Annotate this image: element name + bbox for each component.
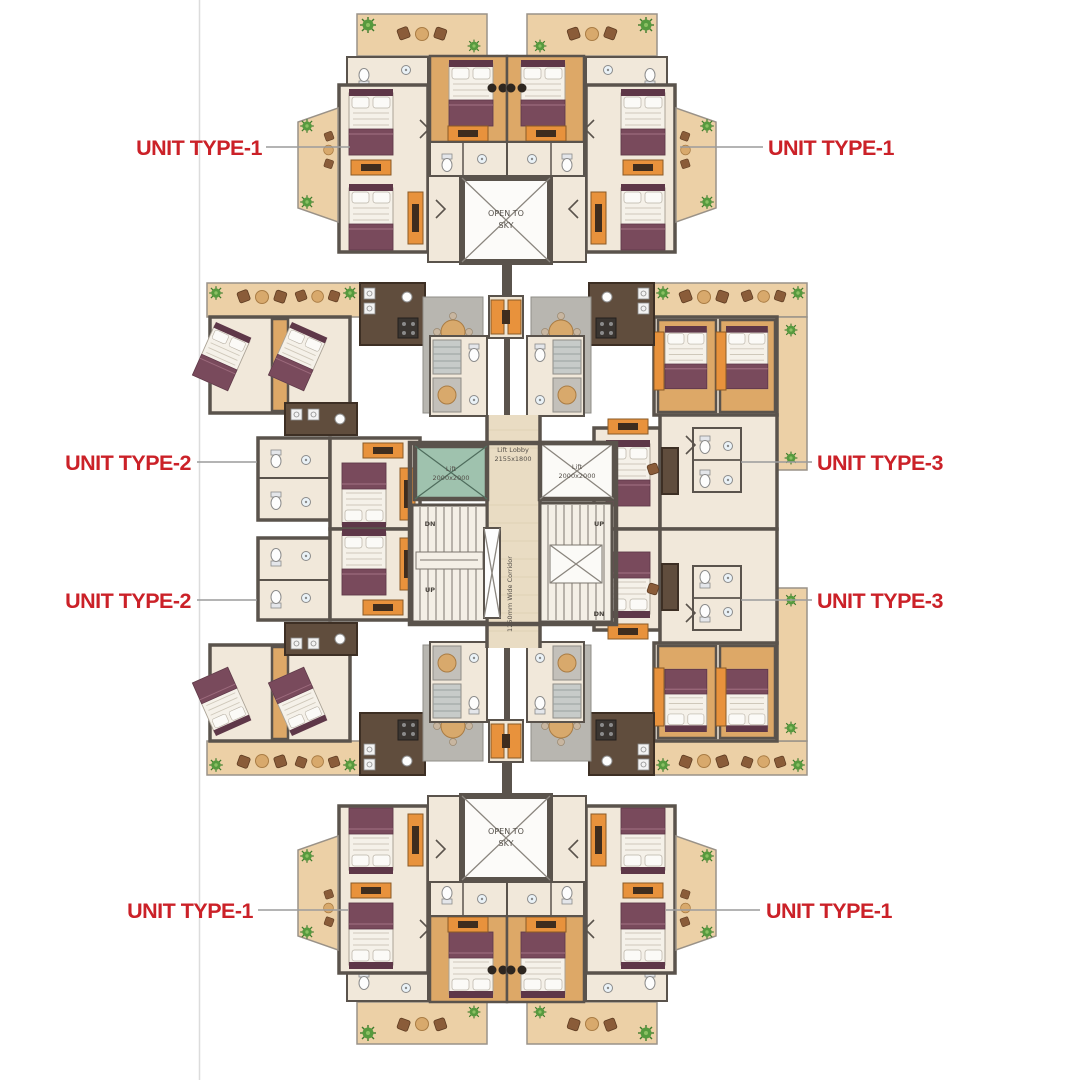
top-cluster-instance [298, 14, 716, 298]
open-to-sky-top: OPEN TO [488, 209, 524, 218]
svg-text:2155x1800: 2155x1800 [495, 455, 532, 463]
unit-label-mid-lower-left: UNIT TYPE-2 [65, 589, 191, 613]
stair-dn-right: DN [594, 610, 605, 618]
unit-label-mid-lower-right: UNIT TYPE-3 [817, 589, 943, 613]
svg-text:2000x2000: 2000x2000 [433, 474, 470, 482]
lift-lobby-label: Lift Lobby [497, 446, 529, 454]
svg-text:2000x2000: 2000x2000 [559, 472, 596, 480]
stair-dn-left: DN [425, 520, 436, 528]
svg-text:SKY: SKY [499, 221, 514, 230]
corridor-label: 1250mm Wide Corridor [506, 556, 514, 632]
floor-plan-page: OPEN TO SKY OPEN TO SKY Lift Lobby 2155x… [0, 0, 1080, 1080]
unit-label-mid-upper-left: UNIT TYPE-2 [65, 451, 191, 475]
floor-plan: OPEN TO SKY OPEN TO SKY Lift Lobby 2155x… [0, 0, 1080, 1080]
bottom-cluster-instance [298, 760, 716, 1044]
lift-left-label: Lift [446, 465, 457, 473]
staircase-left [412, 505, 487, 622]
unit-label-bottom-left: UNIT TYPE-1 [127, 899, 253, 923]
open-to-sky-bottom: OPEN TO [488, 827, 524, 836]
unit-label-top-left: UNIT TYPE-1 [136, 136, 262, 160]
unit-label-top-right: UNIT TYPE-1 [768, 136, 894, 160]
stair-up-left: UP [425, 586, 435, 594]
stair-up-right: UP [594, 520, 604, 528]
lift-right-label: Lift [572, 463, 583, 471]
unit-label-mid-upper-right: UNIT TYPE-3 [817, 451, 943, 475]
unit-label-bottom-right: UNIT TYPE-1 [766, 899, 892, 923]
svg-text:SKY: SKY [499, 839, 514, 848]
